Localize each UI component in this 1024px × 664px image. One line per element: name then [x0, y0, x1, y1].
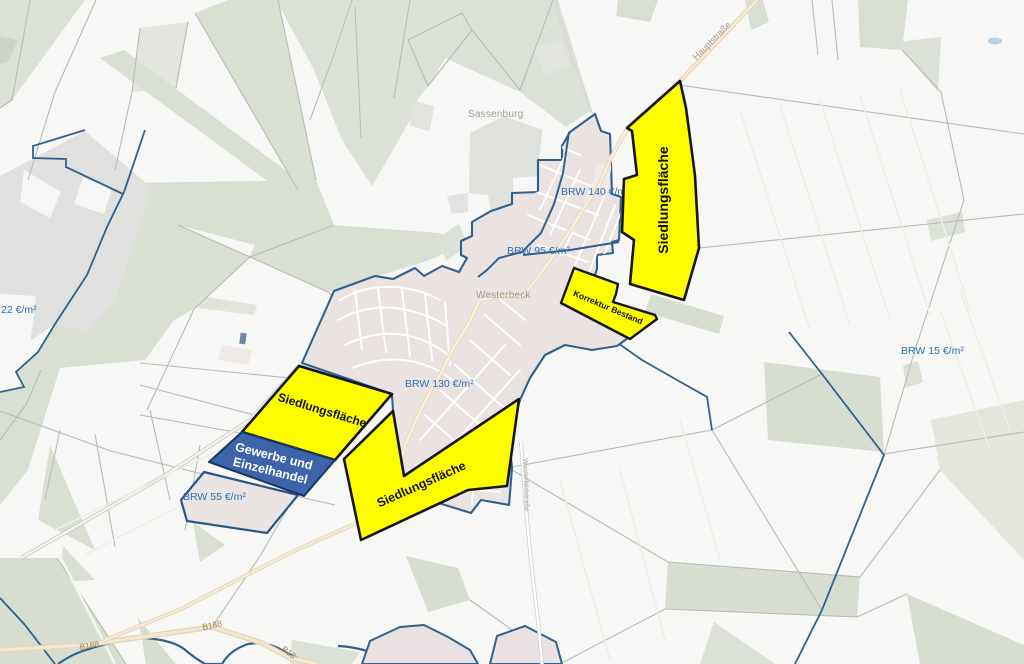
svg-text:22 €/m²: 22 €/m²: [1, 304, 37, 316]
svg-text:BRW 55 €/m²: BRW 55 €/m²: [183, 491, 246, 503]
svg-text:Sassenburg: Sassenburg: [468, 109, 523, 120]
svg-text:BRW 95 €/m²: BRW 95 €/m²: [507, 245, 570, 257]
svg-text:BRW 15 €/m²: BRW 15 €/m²: [901, 345, 964, 357]
svg-text:Westerbeck: Westerbeck: [476, 290, 531, 301]
svg-text:BRW 140 €/m²: BRW 140 €/m²: [561, 186, 630, 198]
svg-text:Siedlungsfläche: Siedlungsfläche: [655, 146, 671, 254]
svg-text:BRW 130 €/m²: BRW 130 €/m²: [405, 378, 474, 390]
